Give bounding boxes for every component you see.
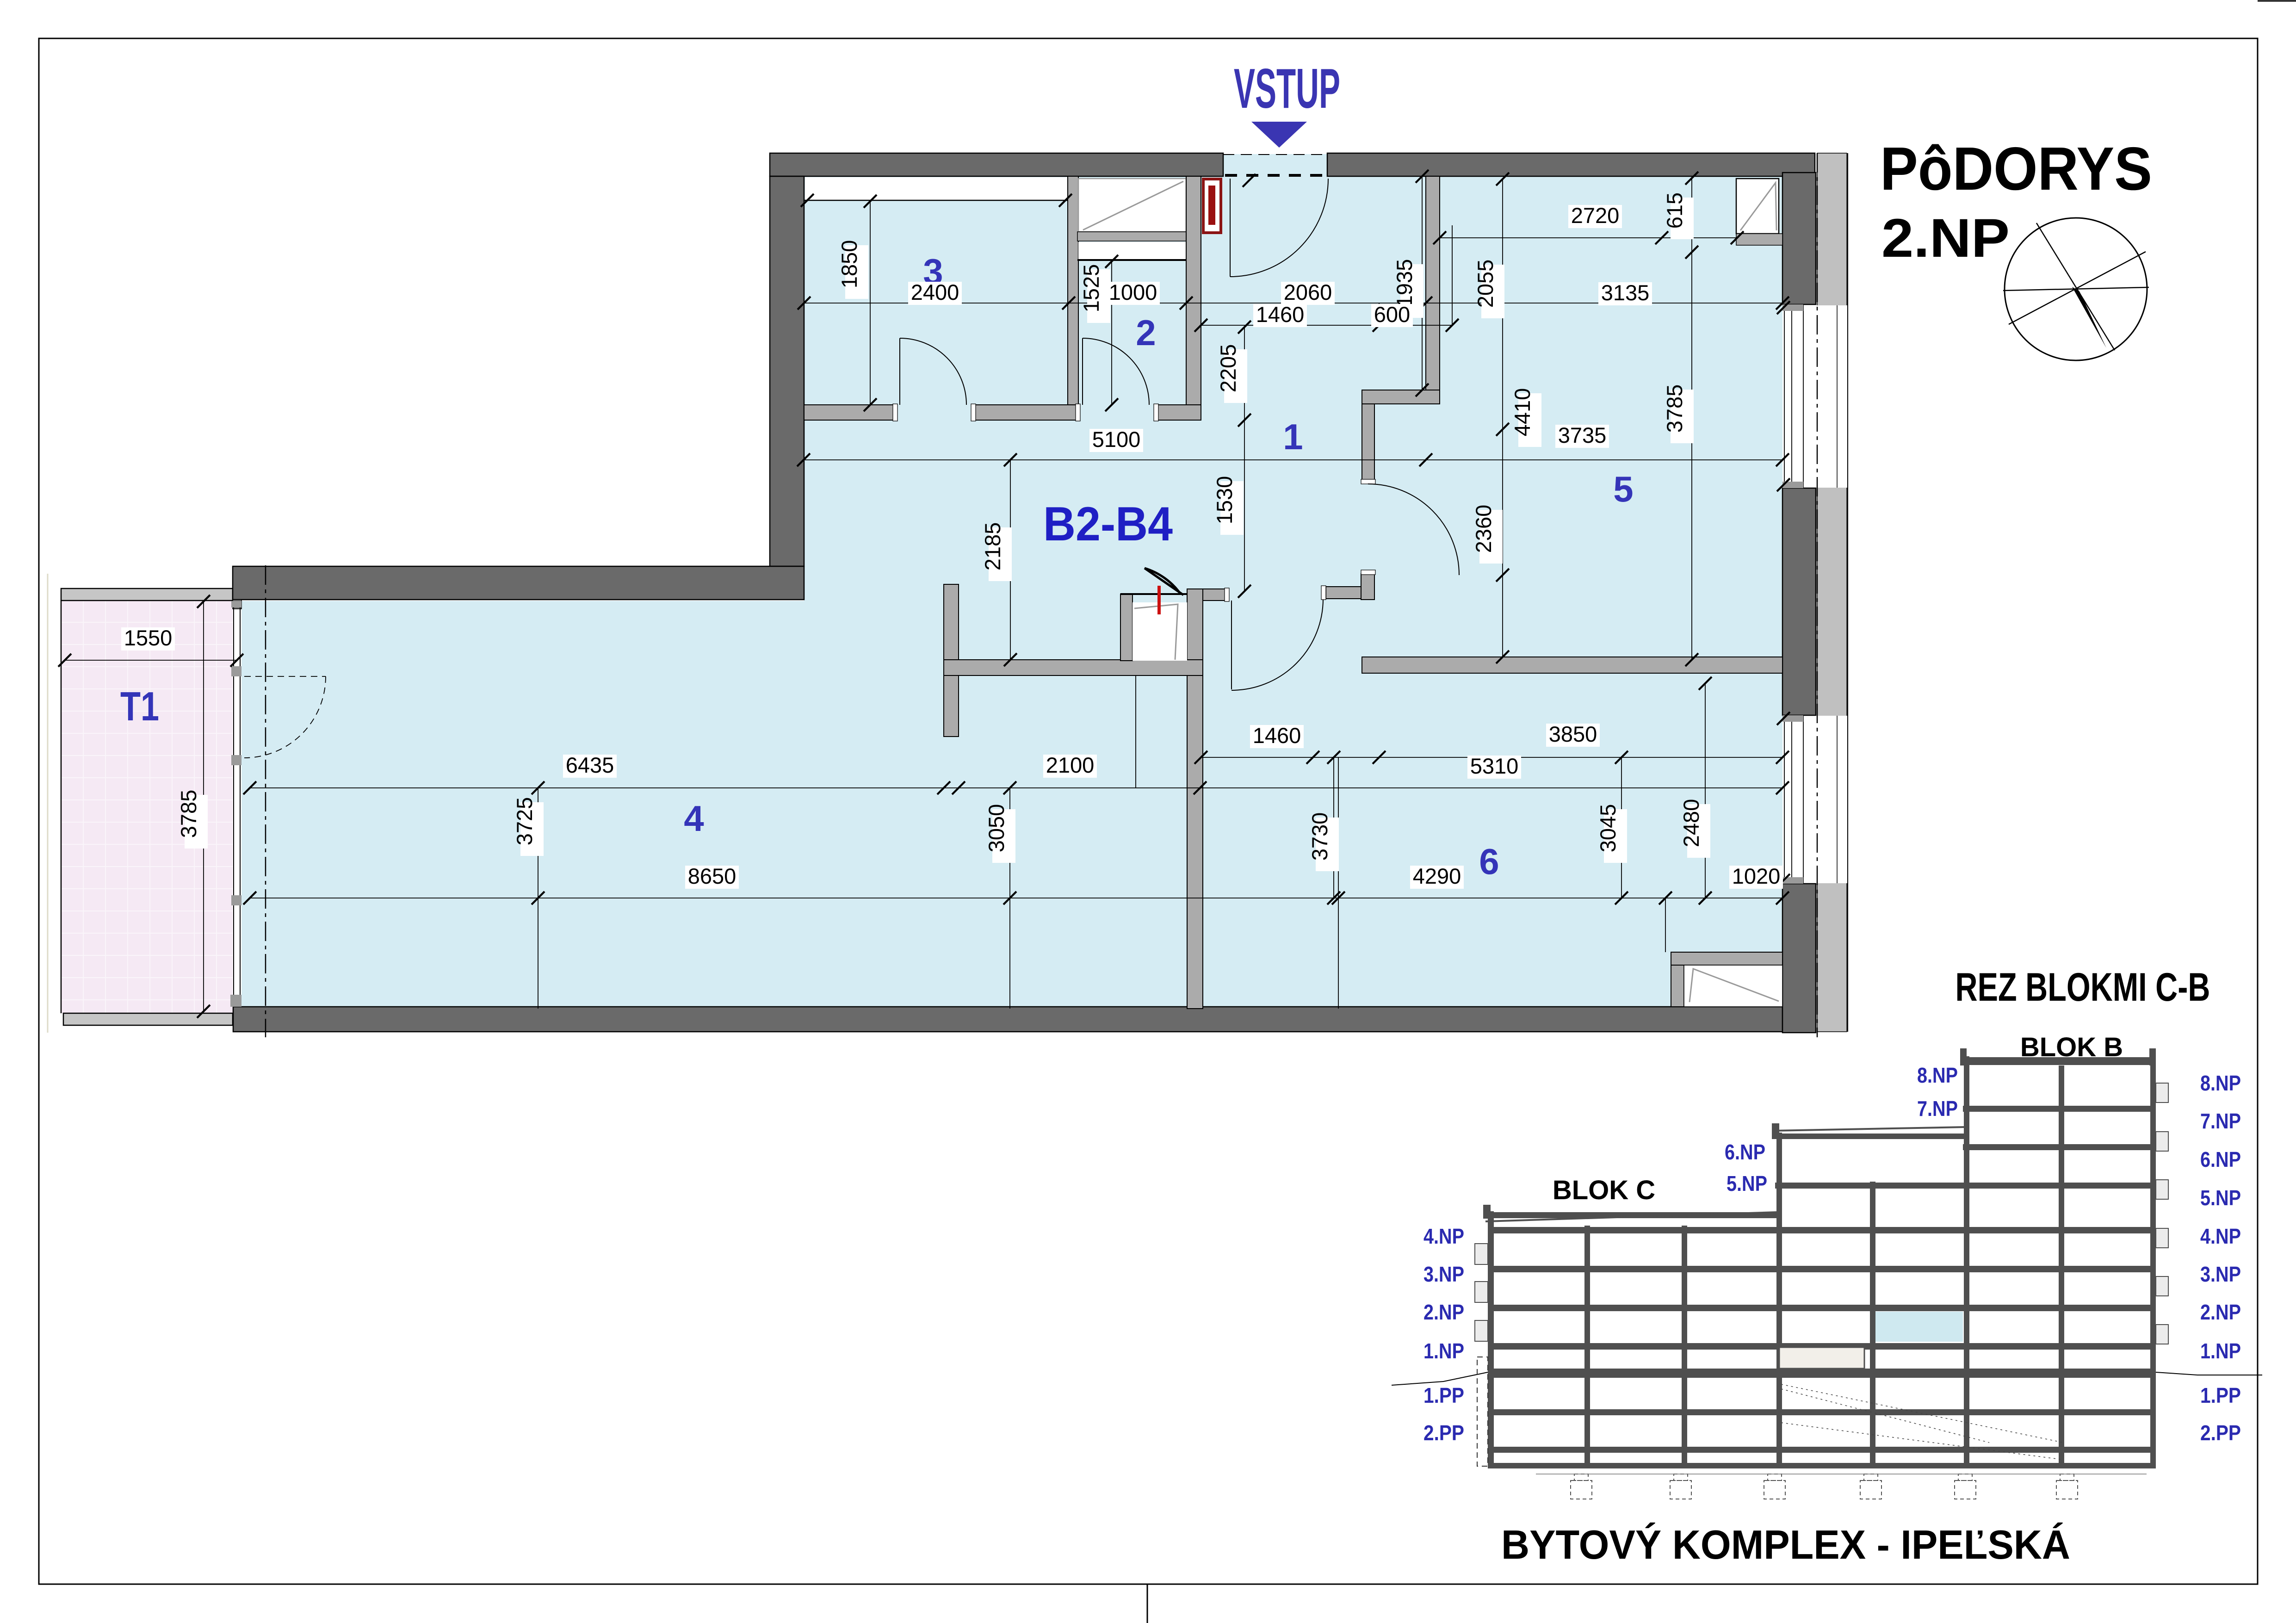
svg-text:1.NP: 1.NP <box>1423 1339 1464 1363</box>
svg-text:5.NP: 5.NP <box>2200 1186 2241 1210</box>
svg-text:615: 615 <box>1662 192 1687 229</box>
svg-text:2: 2 <box>1136 312 1156 353</box>
svg-text:5310: 5310 <box>1470 754 1519 778</box>
svg-text:1000: 1000 <box>1109 280 1157 304</box>
svg-text:3735: 3735 <box>1558 423 1607 447</box>
svg-text:3730: 3730 <box>1307 812 1332 861</box>
svg-text:1: 1 <box>1283 416 1303 457</box>
svg-text:4.NP: 4.NP <box>1423 1224 1464 1248</box>
svg-text:VSTUP: VSTUP <box>1234 57 1340 120</box>
svg-text:1935: 1935 <box>1392 259 1417 308</box>
svg-text:3850: 3850 <box>1549 722 1597 746</box>
svg-text:2400: 2400 <box>911 280 959 304</box>
svg-text:2055: 2055 <box>1473 260 1498 308</box>
svg-text:6.NP: 6.NP <box>1725 1140 1765 1164</box>
svg-text:8650: 8650 <box>688 864 736 888</box>
svg-text:2.PP: 2.PP <box>1423 1421 1464 1445</box>
svg-text:T1: T1 <box>120 683 159 729</box>
svg-text:1460: 1460 <box>1256 302 1305 327</box>
svg-text:BLOK B: BLOK B <box>2020 1032 2123 1062</box>
svg-text:4: 4 <box>684 798 704 839</box>
svg-text:2.PP: 2.PP <box>2200 1421 2241 1445</box>
svg-text:8.NP: 8.NP <box>1917 1063 1958 1087</box>
svg-text:2720: 2720 <box>1571 203 1620 228</box>
svg-text:2060: 2060 <box>1284 280 1332 304</box>
svg-text:3050: 3050 <box>984 804 1009 853</box>
svg-text:6435: 6435 <box>566 753 614 777</box>
svg-text:7.NP: 7.NP <box>1917 1096 1958 1121</box>
svg-text:5: 5 <box>1613 469 1633 509</box>
svg-text:3.NP: 3.NP <box>2200 1262 2241 1286</box>
svg-text:1850: 1850 <box>837 240 861 289</box>
svg-text:7.NP: 7.NP <box>2200 1109 2241 1133</box>
svg-text:B2-B4: B2-B4 <box>1043 497 1173 551</box>
svg-text:BLOK C: BLOK C <box>1553 1175 1655 1205</box>
svg-text:1550: 1550 <box>124 626 173 650</box>
svg-text:1.PP: 1.PP <box>1423 1383 1464 1407</box>
svg-text:600: 600 <box>1374 302 1410 327</box>
svg-text:3725: 3725 <box>512 797 537 846</box>
svg-text:3.NP: 3.NP <box>1423 1262 1464 1286</box>
svg-text:6: 6 <box>1479 841 1499 882</box>
svg-text:2.NP: 2.NP <box>1881 208 2010 269</box>
svg-text:REZ BLOKMI C-B: REZ BLOKMI C-B <box>1956 965 2210 1010</box>
svg-text:1530: 1530 <box>1212 476 1237 525</box>
svg-text:2185: 2185 <box>980 522 1005 571</box>
svg-text:1020: 1020 <box>1732 864 1781 888</box>
svg-text:2205: 2205 <box>1216 344 1240 393</box>
svg-text:3135: 3135 <box>1601 280 1650 305</box>
svg-text:4410: 4410 <box>1510 388 1535 437</box>
svg-text:1460: 1460 <box>1253 723 1301 748</box>
svg-text:5.NP: 5.NP <box>1727 1171 1767 1196</box>
svg-text:1525: 1525 <box>1079 264 1103 313</box>
svg-text:BYTOVÝ KOMPLEX - IPEĽSKÁ: BYTOVÝ KOMPLEX - IPEĽSKÁ <box>1501 1522 2070 1567</box>
svg-text:3045: 3045 <box>1596 804 1620 853</box>
svg-text:4290: 4290 <box>1413 864 1461 888</box>
svg-text:PôDORYS: PôDORYS <box>1880 135 2152 203</box>
svg-text:4.NP: 4.NP <box>2200 1224 2241 1248</box>
svg-text:2100: 2100 <box>1046 753 1095 777</box>
svg-text:2.NP: 2.NP <box>2200 1300 2241 1324</box>
svg-text:3785: 3785 <box>176 790 201 838</box>
svg-text:6.NP: 6.NP <box>2200 1147 2241 1171</box>
svg-text:2360: 2360 <box>1471 505 1496 553</box>
svg-text:5100: 5100 <box>1092 427 1141 452</box>
svg-text:2.NP: 2.NP <box>1423 1300 1464 1324</box>
svg-text:8.NP: 8.NP <box>2200 1071 2241 1095</box>
svg-text:1.NP: 1.NP <box>2200 1339 2241 1363</box>
svg-text:3785: 3785 <box>1662 384 1687 433</box>
svg-text:1.PP: 1.PP <box>2200 1383 2241 1407</box>
svg-text:2480: 2480 <box>1679 799 1703 848</box>
